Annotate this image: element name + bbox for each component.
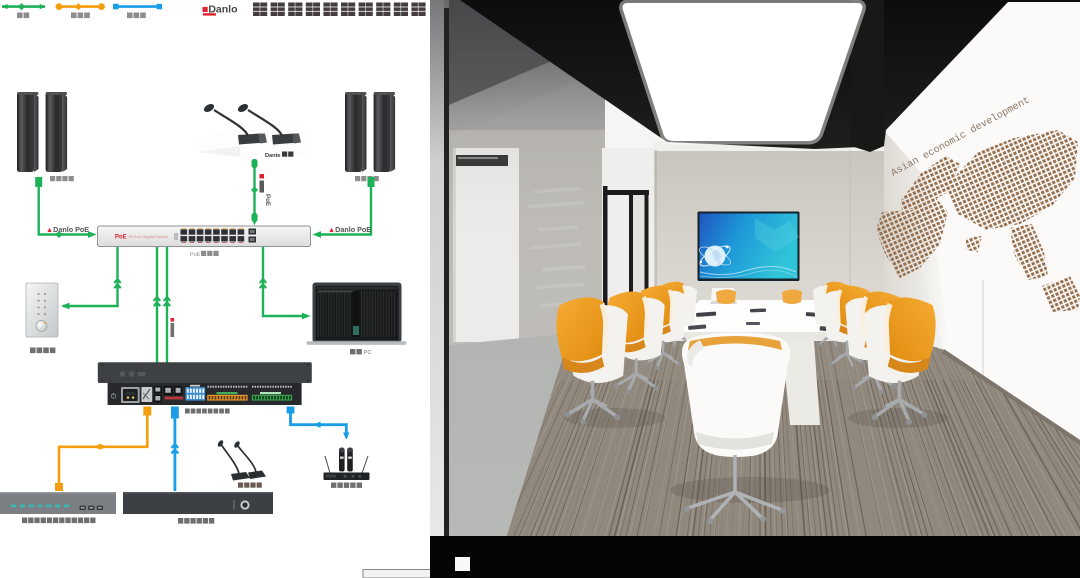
svg-text:PoE: PoE [190,252,201,258]
svg-text:Dante: Dante [265,153,281,159]
svg-text:PC: PC [364,350,372,356]
svg-text:▲Danlo PoE: ▲Danlo PoE [328,225,371,234]
svg-text:▲Danlo PoE: ▲Danlo PoE [46,225,89,234]
svg-text:PoE: PoE [264,194,271,206]
svg-text:16-Port Gigabit Switch: 16-Port Gigabit Switch [128,234,168,239]
svg-text:PoE: PoE [115,235,127,241]
